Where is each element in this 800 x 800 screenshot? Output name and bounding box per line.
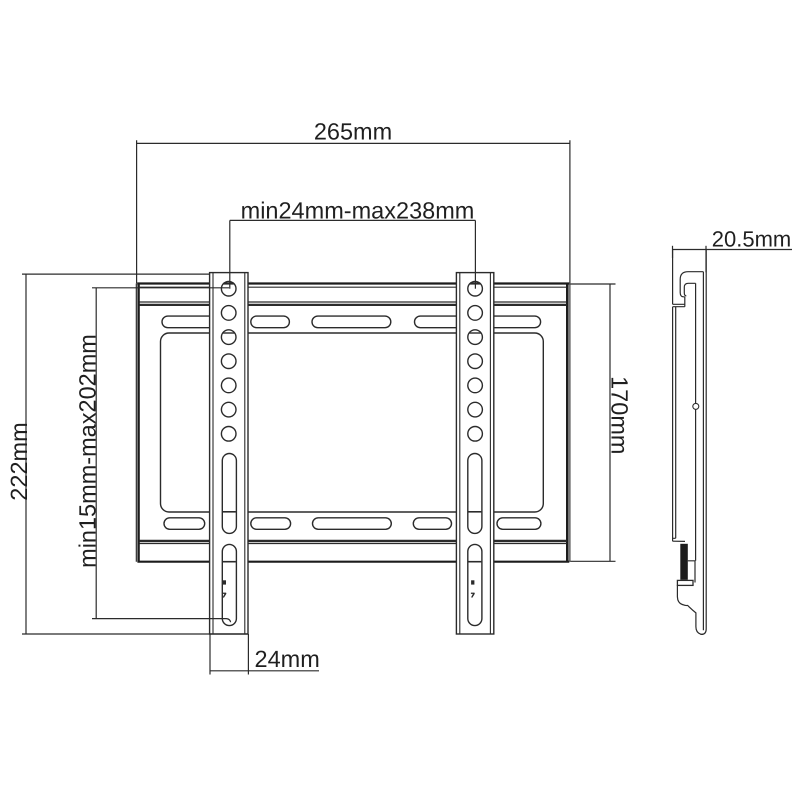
svg-text:170mm: 170mm	[607, 376, 633, 454]
svg-text:222mm: 222mm	[6, 422, 32, 500]
svg-text:24mm: 24mm	[255, 646, 320, 672]
svg-text:265mm: 265mm	[314, 119, 392, 145]
svg-text:min15mm-max202mm: min15mm-max202mm	[75, 334, 101, 568]
svg-text:min24mm-max238mm: min24mm-max238mm	[241, 198, 475, 224]
svg-text:20.5mm: 20.5mm	[712, 227, 791, 252]
